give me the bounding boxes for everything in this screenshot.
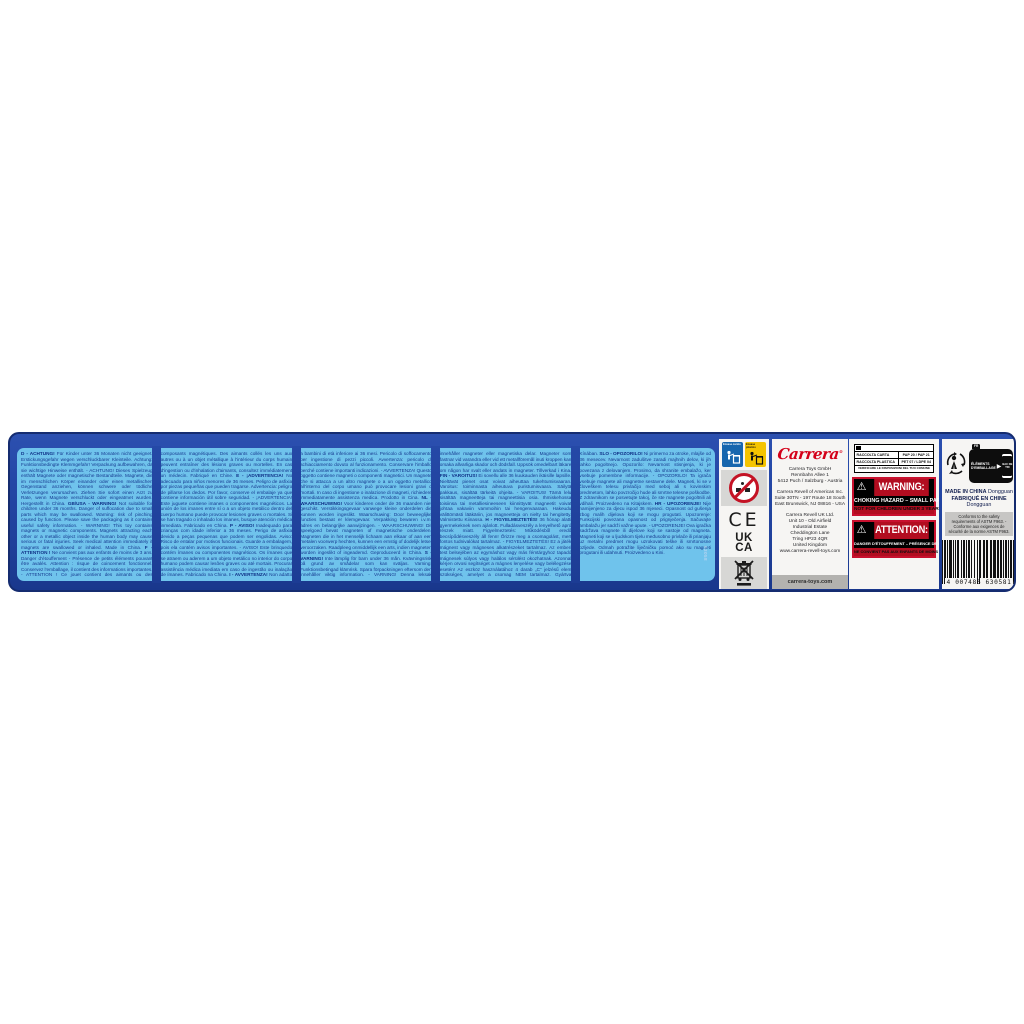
triman-sorting-info: FR ÉLÉMENTS D'EMBALLAGE ▶ BAC DE TRI — [942, 439, 1016, 483]
warning-language-block: NL - WAARSCHUWING! Voor kinderen onder d… — [300, 495, 432, 555]
disposal-table-row: RACCOLTA PLASTICAPET 07 / LDPE 04 — [855, 459, 933, 466]
warning-line3: NOT FOR CHILDREN UNDER 3 YEARS. — [854, 506, 934, 514]
column-gap-strip — [152, 446, 161, 583]
ce-mark: CE — [728, 510, 759, 530]
weee-crossed-bin-icon — [721, 557, 767, 589]
packaging-side-panel: D - ACHTUNG! Für Kinder unter 36 Monaten… — [8, 432, 1016, 592]
barcode-digits: 4 007486 630581 — [942, 579, 1016, 586]
packaging-sorting-icons: Envase cartón Envase plástico — [722, 442, 766, 467]
italian-disposal-table: RACCOLTA CARTAPAP 20 / PAP 21RACCOLTA PL… — [854, 444, 934, 473]
warning-triangle-icon: ⚠ — [854, 522, 869, 539]
warning-word: WARNING: — [874, 479, 929, 496]
disposal-table-header — [855, 445, 933, 452]
do-not-swallow-warning — [721, 470, 767, 506]
choking-hazard-warning-label: ⚠ WARNING: CHOKING HAZARD – SMALL PARTS … — [852, 477, 936, 516]
attention-word: ATTENTION: — [874, 522, 929, 539]
multilingual-warning-block: D - ACHTUNG! Für Kinder unter 36 Monaten… — [17, 448, 715, 581]
warning-triangle-icon: ⚠ — [854, 479, 869, 496]
attention-line2: DANGER D'ÉTOUFFEMENT – PRÉSENCE DE PETIT… — [854, 539, 934, 548]
ukca-mark: UK CA — [735, 534, 753, 553]
origin-barcode-column: FR ÉLÉMENTS D'EMBALLAGE ▶ BAC DE TRI MAD… — [942, 439, 1016, 589]
warning-line2: CHOKING HAZARD – SMALL PARTS — [854, 496, 934, 506]
column-gap-strip — [292, 446, 301, 583]
manufacturer-column: Carrera® Carrera Toys GmbH Rennbahn Alle… — [772, 439, 848, 589]
item-number-vertical: 63058 — [703, 546, 708, 561]
warning-language-block: SLO - OPOZORILO! Ni primerno za otroke, … — [579, 451, 711, 506]
attention-line3: NE CONVIENT PAS AUX ENFANTS DE MOINS DE … — [854, 548, 934, 556]
website-bar: carrera-toys.com — [772, 575, 848, 589]
column-gap-strip — [431, 446, 440, 583]
warning-language-block: E - ¡ADVERTENCIA! No adecuado para niños… — [161, 473, 293, 528]
hazard-labels-column: RACCOLTA CARTAPAP 20 / PAP 21RACCOLTA PL… — [849, 439, 939, 589]
person-bin-pictogram — [748, 451, 764, 465]
made-in-china-text: MADE IN CHINA Dongguan FABRIQUÉ EN CHINE… — [942, 489, 1016, 509]
address-austria: Carrera Toys GmbH Rennbahn Allee 1 5412 … — [772, 467, 848, 485]
carrera-logo: Carrera® — [772, 444, 848, 462]
paper-sorting-icon: Envase cartón — [722, 442, 743, 467]
person-bin-pictogram — [725, 450, 741, 464]
ean-barcode: 4 007486 630581 — [942, 539, 1016, 586]
address-usa: Carrera Revell of Americas Inc. Suite 30… — [772, 490, 848, 508]
chevron-right-icon: ▶ — [997, 463, 1002, 470]
attention-hazard-label-french: ⚠ ATTENTION: DANGER D'ÉTOUFFEMENT – PRÉS… — [852, 520, 936, 558]
warning-language-block: GB/USA - WARNING! Not suitable for child… — [21, 501, 153, 550]
warning-language-block: FIN - VAROITUS! Ei sovellu alle 36 kuuka… — [440, 473, 572, 522]
plastic-sorting-icon: Envase plástico — [745, 442, 766, 467]
compliance-icons-column: Envase cartón Envase plástico — [719, 439, 769, 589]
triman-icon — [945, 451, 967, 477]
warning-text-columns: D - ACHTUNG! Für Kinder unter 36 Monaten… — [17, 448, 715, 581]
packaging-elements-box: FR ÉLÉMENTS D'EMBALLAGE ▶ BAC DE TRI — [969, 449, 1013, 483]
barcode-bars — [942, 539, 1016, 584]
prohibition-icon — [729, 473, 759, 503]
address-uk: Carrera Revell UK Ltd. Unit 10 - Old Air… — [772, 513, 848, 555]
warning-language-block: P - AVISO! Inadequado para crianças com … — [161, 523, 293, 578]
column-gap-strip — [571, 446, 580, 583]
warning-language-block: HR - UPOZORENJE! Nije namijenjeno za dje… — [579, 501, 711, 556]
astm-conformity-note: Conforms to the safety requirements of A… — [945, 512, 1013, 536]
warning-language-block: D - ACHTUNG! Für Kinder unter 36 Monaten… — [21, 451, 153, 506]
packaging-elements-label: ÉLÉMENTS D'EMBALLAGE — [971, 462, 996, 470]
info-icon — [856, 446, 861, 451]
disposal-table-footer: VERIFICARE LE DISPOSIZIONI DEL TUO COMUN… — [855, 466, 933, 472]
sorting-bin-icon: BAC DE TRI — [1002, 454, 1012, 478]
fr-tab: FR — [972, 444, 980, 449]
disposal-table-row: RACCOLTA CARTAPAP 20 / PAP 21 — [855, 452, 933, 459]
